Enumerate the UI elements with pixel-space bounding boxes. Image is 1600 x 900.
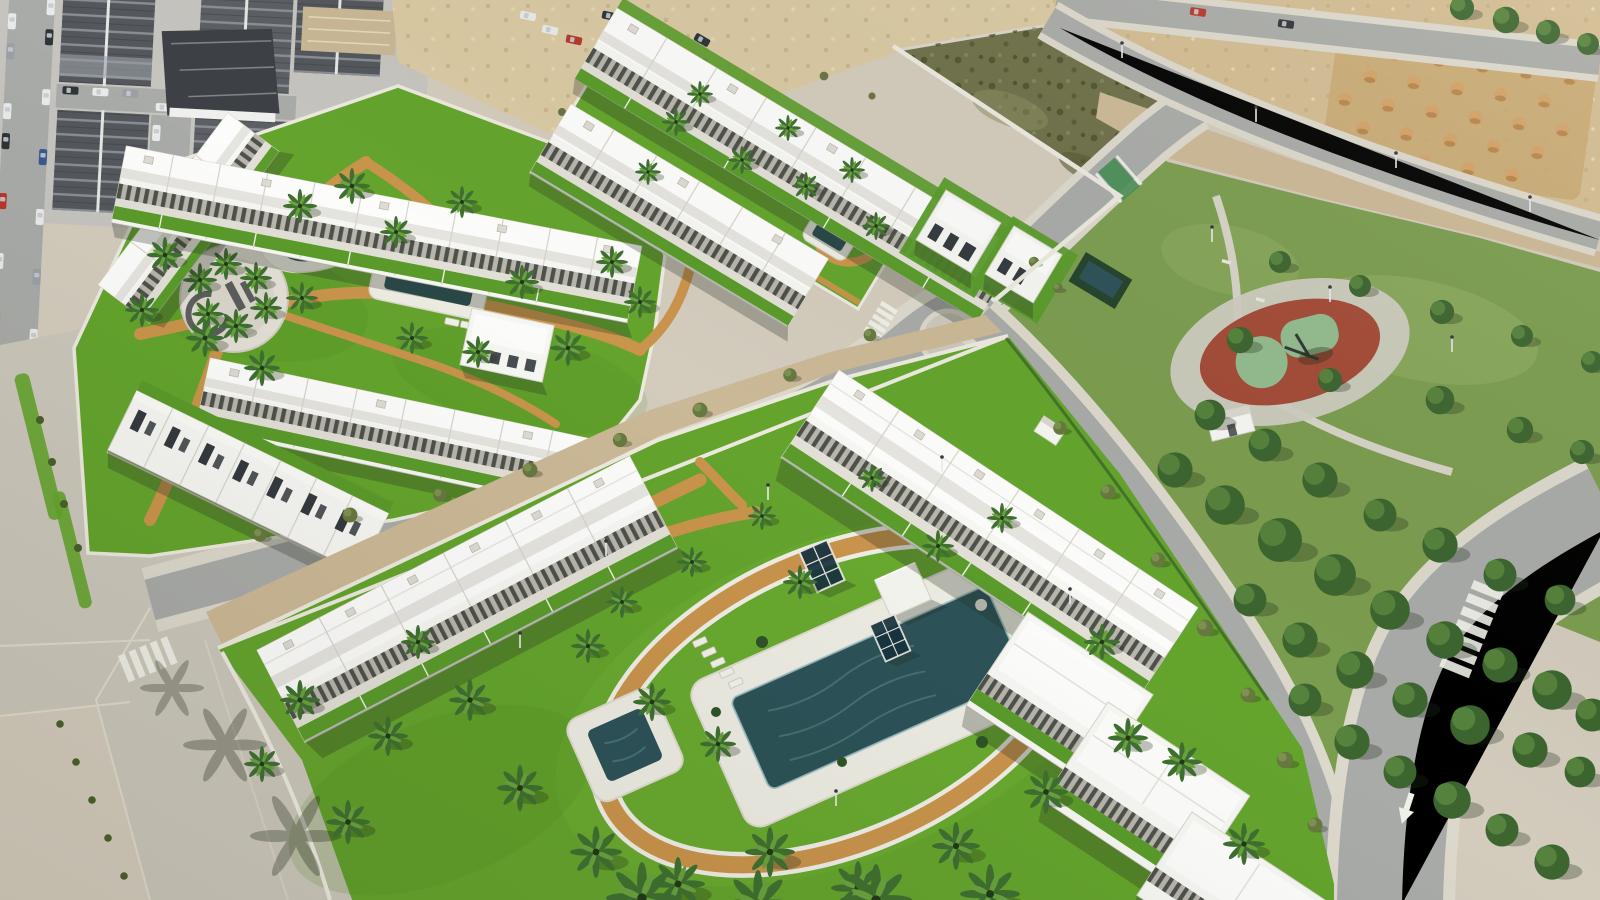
light-overlay <box>0 0 1600 900</box>
aerial-render <box>0 0 1600 900</box>
screenshot-root <box>0 0 1600 900</box>
